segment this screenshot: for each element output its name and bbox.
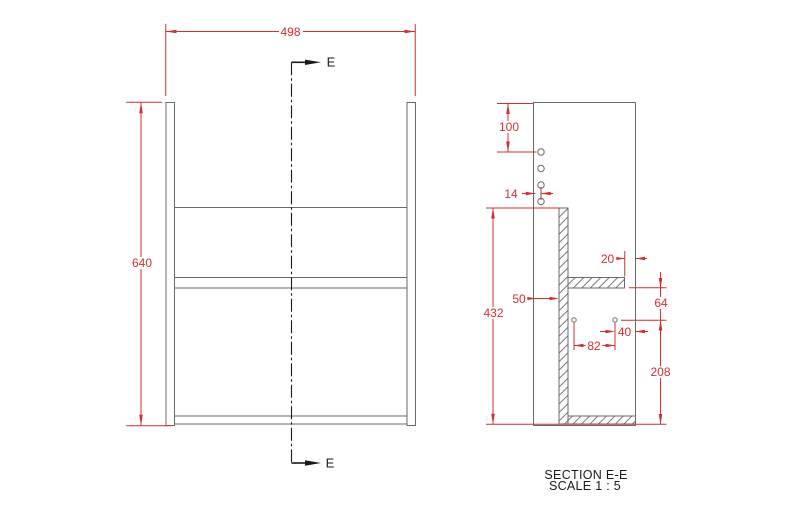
shelf-section [568, 278, 625, 289]
drill-hole-small [572, 318, 576, 322]
drill-hole [538, 165, 544, 171]
drawing-geometry [0, 0, 800, 513]
left-side-panel [166, 103, 175, 426]
dim-100-lines [497, 104, 537, 153]
dim-20-lines [616, 251, 648, 277]
dimension-lines [126, 24, 667, 426]
dim-82-lines [574, 323, 615, 350]
dim-640-lines [126, 102, 171, 425]
section-cut-line [292, 60, 322, 466]
front-view [166, 103, 416, 426]
dim-50-lines [527, 297, 560, 300]
dim-498-lines [166, 24, 416, 96]
section-view [534, 103, 636, 426]
right-side-panel [407, 103, 416, 426]
dim-40-lines [600, 330, 648, 333]
dim-14-lines [522, 187, 553, 200]
side-panel-profile [534, 103, 636, 426]
false-back-section [559, 208, 568, 424]
drill-hole-small [613, 318, 617, 322]
drawing-sheet: 498 640 E E 100 14 50 432 20 64 82 40 20… [0, 0, 800, 513]
section-arrow-bottom-icon [305, 460, 321, 465]
bottom-panel-section [568, 416, 636, 424]
drill-hole [538, 149, 544, 155]
section-arrow-top-icon [305, 60, 321, 65]
dim-64-208-lines [621, 272, 667, 424]
dim-432-lines [486, 208, 667, 424]
